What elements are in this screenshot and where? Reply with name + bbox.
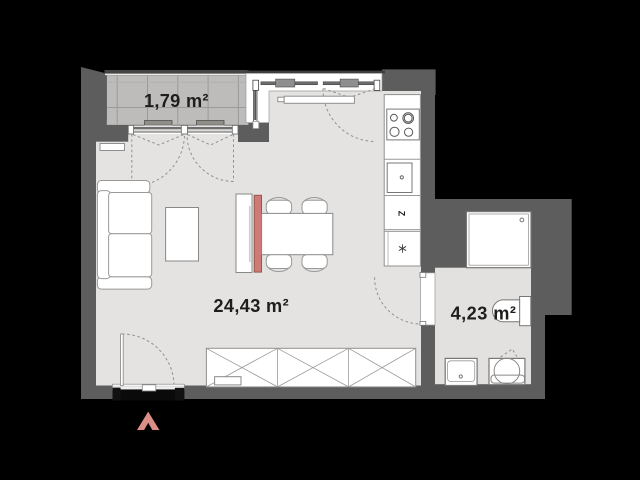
svg-text:24,43 m²: 24,43 m² <box>213 296 289 316</box>
svg-text:4,23 m²: 4,23 m² <box>451 304 517 324</box>
svg-text:Z: Z <box>397 211 407 217</box>
svg-text:1,79 m²: 1,79 m² <box>144 91 209 111</box>
